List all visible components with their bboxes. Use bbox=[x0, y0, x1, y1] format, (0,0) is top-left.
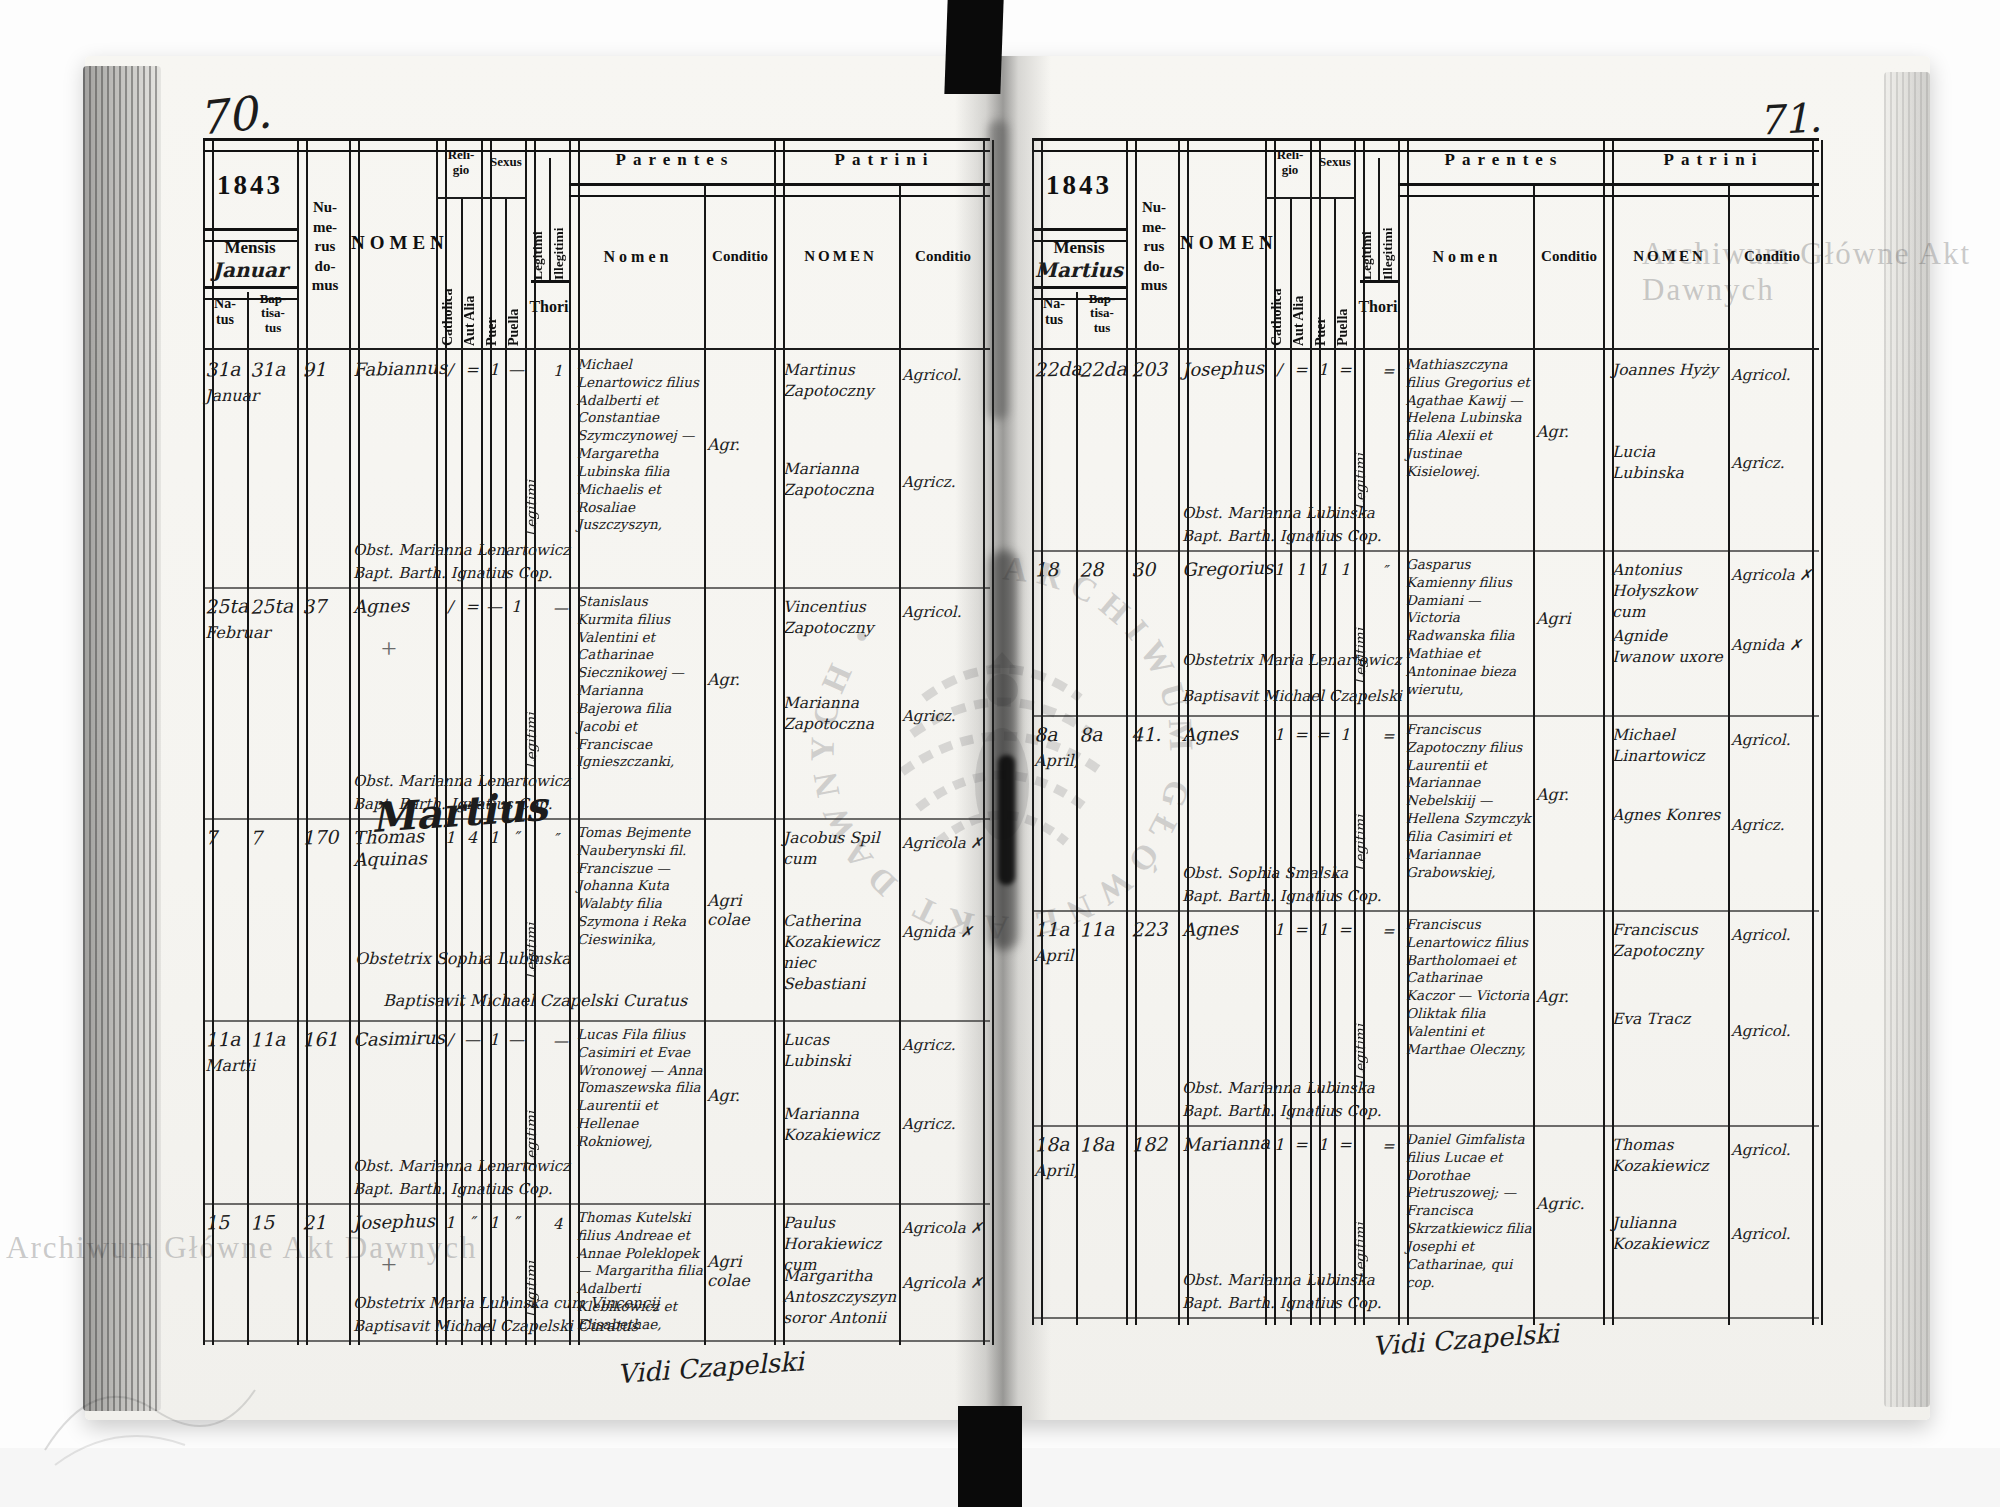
entry-natus-date: 15 bbox=[205, 1210, 248, 1233]
entry-thori-mark: 4 bbox=[553, 1215, 569, 1233]
entry-child-name: Agnes bbox=[1182, 917, 1269, 941]
entry-godparent-2: Margaritha Antoszczyszyn soror Antonii bbox=[783, 1266, 897, 1329]
entry-parents-conditio: Agr. bbox=[707, 435, 773, 454]
register-entry: 7 7 170 Thomas Aquinas 1 4 1 ″ Legitimi … bbox=[203, 818, 990, 1020]
entry-death-cross: + bbox=[381, 633, 421, 665]
entry-godparent-1: Martinus Zapotoczny bbox=[783, 360, 897, 402]
entry-godparent-2: Agnes Konres bbox=[1612, 805, 1726, 826]
entry-baptisatus-date: 15 bbox=[250, 1210, 299, 1233]
entry-month: Martii bbox=[205, 1056, 297, 1075]
entry-parents-text: Michael Lenartowicz filius Adalberti et … bbox=[577, 356, 703, 534]
entry-godparent-2: Agnide Iwanow uxore bbox=[1612, 626, 1726, 668]
header-aut-alia: Aut Alia bbox=[1291, 202, 1311, 346]
entry-parents-conditio: Agri colae bbox=[707, 1252, 773, 1290]
entry-godparent-1-conditio: Agricol. bbox=[1731, 731, 1815, 749]
entry-aut-alia-mark: = bbox=[1291, 1135, 1311, 1154]
header-parentes-conditio: Conditio bbox=[706, 248, 774, 265]
entry-aut-alia-mark: — bbox=[462, 1030, 482, 1049]
register-table-right: 1843 Mensis Martius Na- tus Bap- tisa- t… bbox=[1032, 140, 1819, 1325]
entry-child-name: Josephus bbox=[1182, 357, 1269, 381]
entry-baptisavit-line: Bapt. Barth. Ignatius Cop. bbox=[353, 1180, 783, 1198]
entry-puer-mark: 1 bbox=[484, 1030, 504, 1049]
entry-godparent-1: Lucas Lubinski bbox=[783, 1030, 897, 1072]
entry-puer-mark: 1 bbox=[1313, 920, 1333, 939]
register-entry: 18 28 30 Gregorius 1 1 1 1 Legitimi ″ Ga… bbox=[1032, 550, 1819, 715]
entry-baptisatus-date: 11a bbox=[1079, 917, 1128, 940]
header-parentes-conditio: Conditio bbox=[1535, 248, 1603, 265]
entry-child-name: Agnes bbox=[353, 594, 440, 618]
entry-baptisatus-date: 31a bbox=[250, 357, 299, 380]
entry-month: Januar bbox=[205, 386, 297, 405]
rule bbox=[1315, 197, 1356, 199]
header-patrini-nomen: NOMEN bbox=[783, 248, 898, 265]
entry-parents-conditio: Agr. bbox=[1536, 422, 1602, 441]
rule bbox=[569, 183, 781, 197]
entry-puer-mark: 1 bbox=[484, 360, 504, 379]
register-entry: 8a 8a April, 41. Agnes 1 = = 1 Legitimi … bbox=[1032, 715, 1819, 910]
entry-parents-text: Gasparus Kamienny filius Damiani — Victo… bbox=[1406, 556, 1532, 699]
rule bbox=[486, 197, 527, 199]
entry-baptisavit-line: Bapt. Barth. Ignatius Cop. bbox=[353, 564, 783, 582]
entry-baptisavit-line: Baptisavit Michael Czapelski Curatus bbox=[353, 1317, 783, 1335]
entry-catholica-mark: 1 bbox=[1269, 725, 1289, 744]
entry-catholica-mark: 1 bbox=[440, 1213, 460, 1232]
entry-parents-conditio: Agr. bbox=[707, 670, 773, 689]
entry-house-number: 182 bbox=[1131, 1132, 1178, 1155]
header-natus: Na- tus bbox=[203, 296, 247, 328]
header-aut-alia: Aut Alia bbox=[462, 202, 482, 346]
entry-puer-mark: 1 bbox=[1313, 560, 1333, 579]
entry-baptisatus-date: 8a bbox=[1079, 722, 1128, 745]
entry-thori-mark: ″ bbox=[1382, 562, 1398, 580]
entry-child-name: Casimirus bbox=[353, 1027, 440, 1051]
entry-godparent-2: Eva Tracz bbox=[1612, 1009, 1726, 1030]
entry-thori-mark: = bbox=[1382, 727, 1398, 745]
entry-puer-mark: 1 bbox=[1313, 1135, 1333, 1154]
entry-aut-alia-mark: = bbox=[462, 597, 482, 616]
entry-month: Februar bbox=[205, 623, 297, 642]
header-baptisatus: Bap- tisa- tus bbox=[1078, 292, 1126, 335]
header-parentes-nomen: Nomen bbox=[1402, 248, 1532, 266]
entry-house-number: 30 bbox=[1131, 557, 1178, 580]
header-religio: Reli- gio bbox=[437, 148, 485, 178]
header-illegitimi: Illegitimi bbox=[551, 160, 569, 280]
entry-godparent-1: Franciscus Zapotoczny bbox=[1612, 920, 1726, 962]
entry-house-number: 41. bbox=[1131, 722, 1178, 745]
header-mensis: Mensis bbox=[203, 238, 297, 258]
entry-aut-alia-mark: 1 bbox=[1291, 560, 1311, 579]
entry-puer-mark: 1 bbox=[484, 1213, 504, 1232]
header-parentes: Parentes bbox=[571, 150, 779, 170]
entry-godparent-2-conditio: Agricol. bbox=[1731, 1225, 1815, 1243]
entry-godparent-2: Marianna Kozakiewicz bbox=[783, 1104, 897, 1146]
register-entry: 22da 22da 203 Josephus / = 1 = Legitimi … bbox=[1032, 350, 1819, 550]
entry-godparent-1-conditio: Agricol. bbox=[1731, 1141, 1815, 1159]
header-numerus-domus: Nu- me- rus do- mus bbox=[1129, 198, 1179, 296]
entry-parents-conditio: Agr. bbox=[1536, 785, 1602, 804]
header-nomen: NOMEN bbox=[1180, 232, 1266, 254]
header-numerus-domus: Nu- me- rus do- mus bbox=[300, 198, 350, 296]
header-puer: Puer bbox=[484, 202, 504, 346]
entry-natus-date: 31a bbox=[205, 357, 248, 380]
entry-thori-mark: ″ bbox=[553, 830, 569, 848]
entry-godparent-2: Julianna Kozakiewicz bbox=[1612, 1213, 1726, 1255]
header-patrini-nomen: NOMEN bbox=[1612, 248, 1727, 265]
entry-godparent-1-conditio: Agricol. bbox=[1731, 366, 1815, 384]
entry-catholica-mark: / bbox=[440, 597, 460, 616]
rule bbox=[436, 197, 486, 199]
header-parentes: Parentes bbox=[1400, 150, 1608, 170]
entry-aut-alia-mark: = bbox=[1291, 360, 1311, 379]
entry-parents-conditio: Agr. bbox=[707, 1086, 773, 1105]
register-entry: 11a 11a April 223 Agnes 1 = 1 = Legitimi… bbox=[1032, 910, 1819, 1125]
register-entry: 25ta 25ta Februar 37 Agnes + / = — 1 Leg… bbox=[203, 587, 990, 818]
entry-house-number: 203 bbox=[1131, 357, 1178, 380]
entry-baptisatus-date: 18a bbox=[1079, 1132, 1128, 1155]
entry-godparent-1: Michael Linartowicz bbox=[1612, 725, 1726, 767]
entry-godparent-1: Antonius Hołyszkow cum bbox=[1612, 560, 1726, 623]
binding-strap-bottom bbox=[958, 1406, 1022, 1507]
entry-house-number: 223 bbox=[1131, 917, 1178, 940]
entry-house-number: 161 bbox=[302, 1027, 349, 1050]
rule bbox=[1398, 183, 1610, 197]
gutter-ink-blotch bbox=[998, 755, 1015, 885]
entry-thori-mark: = bbox=[1382, 362, 1398, 380]
entry-godparent-2-conditio: Agricol. bbox=[1731, 1022, 1815, 1040]
entry-natus-date: 7 bbox=[205, 825, 248, 848]
entry-parents-text: Thomas Kutelski filius Andreae et Annae … bbox=[577, 1209, 703, 1334]
entry-puer-mark: = bbox=[1313, 725, 1333, 744]
entry-obstetrix-line: Obst. Marianna Lubinska bbox=[1182, 1271, 1612, 1289]
gutter-shadow-upper bbox=[988, 120, 1008, 420]
entry-godparent-2-conditio: Agricz. bbox=[1731, 454, 1815, 472]
entry-parents-text: Mathiaszczyna filius Gregorius et Agatha… bbox=[1406, 356, 1532, 481]
entry-obstetrix-line: Obst. Marianna Lubinska bbox=[1182, 504, 1612, 522]
entry-obstetrix-line: Obstetrix Maria Lenartowicz bbox=[1182, 651, 1612, 669]
header-year: 1843 bbox=[203, 170, 297, 201]
entry-obstetrix-line: Obst. Marianna Lenartowicz bbox=[353, 541, 783, 559]
entry-legitimi-script: Legitimi bbox=[1352, 926, 1376, 1081]
entry-catholica-mark: 1 bbox=[1269, 560, 1289, 579]
rule bbox=[1032, 1317, 1819, 1319]
entry-baptisavit-line: Bapt. Barth. Ignatius Cop. bbox=[1182, 887, 1612, 905]
header-legitimi: Legitimi bbox=[530, 160, 548, 280]
entry-parents-text: Daniel Gimfalista filius Lucae et Doroth… bbox=[1406, 1131, 1532, 1291]
entry-godparent-2-conditio: Agnida ✗ bbox=[1731, 636, 1815, 654]
entry-baptisavit-line: Bapt. Barth. Ignatius Cop. bbox=[1182, 1102, 1612, 1120]
entry-parents-conditio: Agri bbox=[1536, 609, 1602, 628]
entry-puer-mark: — bbox=[484, 597, 504, 616]
entry-aut-alia-mark: = bbox=[1291, 725, 1311, 744]
entry-parents-text: Franciscus Zapotoczny filius Laurentii e… bbox=[1406, 721, 1532, 881]
entry-child-name: Gregorius bbox=[1182, 557, 1269, 581]
header-nomen: NOMEN bbox=[351, 232, 437, 254]
entry-catholica-mark: / bbox=[1269, 360, 1289, 379]
header-baptisatus: Bap- tisa- tus bbox=[249, 292, 297, 335]
entry-parents-conditio: Agr. bbox=[1536, 987, 1602, 1006]
register-entry: 18a 18a April, 182 Marianna 1 = 1 = Legi… bbox=[1032, 1125, 1819, 1317]
header-puella: Puella bbox=[506, 202, 526, 346]
entry-baptisatus-date: 11a bbox=[250, 1027, 299, 1050]
gutter-ink-smudge bbox=[990, 550, 1018, 950]
entry-legitimi-script: Legitimi bbox=[1352, 366, 1376, 510]
header-patrini-conditio: Conditio bbox=[1730, 248, 1814, 265]
rule bbox=[531, 280, 569, 283]
header-puella: Puella bbox=[1335, 202, 1355, 346]
register-entry: 31a 31a Januar 91 Fabiannus / = 1 — Legi… bbox=[203, 350, 990, 587]
header-sexus: Sexus bbox=[1314, 154, 1356, 170]
entry-godparent-2: Marianna Zapotoczna bbox=[783, 459, 897, 501]
entry-legitimi-script: Legitimi bbox=[523, 1036, 547, 1168]
entry-godparent-2: Lucia Lubinska bbox=[1612, 442, 1726, 484]
entry-thori-mark: — bbox=[553, 599, 569, 617]
entry-parents-text: Franciscus Lenartowicz filius Bartholoma… bbox=[1406, 916, 1532, 1059]
entry-parents-text: Tomas Bejmente Nauberynski fil. Francisz… bbox=[577, 824, 703, 949]
header-parentes-nomen: Nomen bbox=[573, 248, 703, 266]
entry-death-cross: + bbox=[381, 1249, 421, 1281]
register-scan: Archiwum Główne Akt Dawnych Archiwum Głó… bbox=[0, 0, 2000, 1507]
entry-puer-mark: 1 bbox=[1313, 360, 1333, 379]
rule bbox=[1360, 280, 1398, 283]
header-thori: Thori bbox=[527, 298, 571, 316]
entry-thori-mark: — bbox=[553, 1032, 569, 1050]
entry-aut-alia-mark: ″ bbox=[462, 1213, 482, 1232]
entry-baptisavit-line: Bapt. Barth. Ignatius Cop. bbox=[1182, 1294, 1612, 1312]
entry-parents-text: Stanislaus Kurmita filius Valentini et C… bbox=[577, 593, 703, 771]
entry-parents-conditio: Agri colae bbox=[707, 891, 773, 929]
entry-godparent-1: Thomas Kozakiewicz bbox=[1612, 1135, 1726, 1177]
entry-obstetrix-line: Obst. Sophia Smalska bbox=[1182, 864, 1612, 882]
entry-godparent-1-conditio: Agricola ✗ bbox=[1731, 566, 1815, 584]
entry-parents-text: Lucas Fila filius Casimiri et Evae Wrono… bbox=[577, 1026, 703, 1151]
entry-godparent-2: Catherina Kozakiewicz niec Sebastiani bbox=[783, 911, 897, 995]
binding-strap-top bbox=[944, 0, 1003, 94]
entry-baptisatus-date: 7 bbox=[250, 825, 299, 848]
entry-godparent-2: Marianna Zapotoczna bbox=[783, 693, 897, 735]
entry-child-name: Josephus bbox=[353, 1210, 440, 1234]
header-sexus: Sexus bbox=[485, 154, 527, 170]
entry-godparent-1-conditio: Agricol. bbox=[1731, 926, 1815, 944]
register-table-left: 1843 Mensis Januar Na- tus Bap- tisa- tu… bbox=[203, 140, 990, 1345]
header-legitimi: Legitimi bbox=[1359, 160, 1377, 280]
entry-child-name: Marianna bbox=[1182, 1132, 1269, 1156]
entry-obstetrix-line: Obst. Marianna Lubinska bbox=[1182, 1079, 1612, 1097]
entry-godparent-1: Joannes Hyży bbox=[1612, 360, 1726, 381]
entry-legitimi-script: Legitimi bbox=[1352, 1141, 1376, 1279]
entry-baptisatus-date: 28 bbox=[1079, 557, 1128, 580]
entry-obstetrix-line: Obstetrix Sophia Lubinska bbox=[355, 949, 785, 968]
entry-natus-date: 11a bbox=[205, 1027, 248, 1050]
entry-thori-mark: = bbox=[1382, 1137, 1398, 1155]
entry-catholica-mark: 1 bbox=[1269, 920, 1289, 939]
register-entry: 15 15 21 Josephus + 1 ″ 1 ″ Legitimi 4 T… bbox=[203, 1203, 990, 1340]
entry-legitimi-script: Legitimi bbox=[523, 603, 547, 769]
page-number-right: 71. bbox=[1757, 94, 1823, 143]
entry-baptisatus-date: 22da bbox=[1079, 357, 1128, 380]
page-number-left: 70. bbox=[195, 84, 273, 145]
entry-parents-conditio: Agric. bbox=[1536, 1194, 1602, 1213]
entry-baptisavit-line: Baptisavit Michael Czapelski Curatus bbox=[383, 991, 813, 1010]
header-puer: Puer bbox=[1313, 202, 1333, 346]
entry-house-number: 37 bbox=[302, 594, 349, 617]
entry-obstetrix-line: Obst. Marianna Lenartowicz bbox=[353, 772, 783, 790]
entry-catholica-mark: 1 bbox=[1269, 1135, 1289, 1154]
entry-thori-mark: 1 bbox=[553, 362, 569, 380]
rule bbox=[1608, 183, 1819, 197]
header-thori: Thori bbox=[1356, 298, 1400, 316]
entry-obstetrix-line: Obst. Marianna Lenartowicz bbox=[353, 1157, 783, 1175]
entry-godparent-1: Jacobus Spil cum bbox=[783, 828, 897, 870]
entry-child-name: Fabiannus bbox=[353, 357, 440, 381]
entry-baptisavit-line: Baptisavit Michael Czapelski bbox=[1182, 687, 1612, 705]
entry-godparent-2-conditio: Agricz. bbox=[1731, 816, 1815, 834]
rule bbox=[1265, 197, 1315, 199]
entry-baptisavit-line: Bapt. Barth. Ignatius Cop. bbox=[1182, 527, 1612, 545]
header-catholica: Catholica bbox=[1269, 202, 1289, 346]
header-patrini: Patrini bbox=[1610, 150, 1817, 170]
stacked-page-edges-right bbox=[1884, 72, 1930, 1407]
entry-obstetrix-line: Obstetrix Maria Lubinska cum Vincencij bbox=[353, 1294, 783, 1312]
entry-natus-date: 25ta bbox=[205, 594, 248, 617]
entry-aut-alia-mark: = bbox=[462, 360, 482, 379]
entry-house-number: 21 bbox=[302, 1210, 349, 1233]
entry-baptisatus-date: 25ta bbox=[250, 594, 299, 617]
header-religio: Reli- gio bbox=[1266, 148, 1314, 178]
header-catholica: Catholica bbox=[440, 202, 460, 346]
entry-catholica-mark: / bbox=[440, 1030, 460, 1049]
entry-house-number: 170 bbox=[302, 825, 349, 848]
entry-house-number: 91 bbox=[302, 357, 349, 380]
register-entry: 11a 11a Martii 161 Casimirus / — 1 — Leg… bbox=[203, 1020, 990, 1203]
entry-child-name: Agnes bbox=[1182, 722, 1269, 746]
entry-godparent-1: Vincentius Zapotoczny bbox=[783, 597, 897, 639]
header-illegitimi: Illegitimi bbox=[1380, 160, 1398, 280]
entry-aut-alia-mark: = bbox=[1291, 920, 1311, 939]
entry-thori-mark: = bbox=[1382, 922, 1398, 940]
stacked-page-edges-left bbox=[83, 66, 161, 1411]
entry-legitimi-script: Legitimi bbox=[523, 366, 547, 537]
header-month-script: Januar bbox=[205, 258, 295, 282]
entry-catholica-mark: / bbox=[440, 360, 460, 379]
entry-legitimi-script: Legitimi bbox=[1352, 731, 1376, 871]
